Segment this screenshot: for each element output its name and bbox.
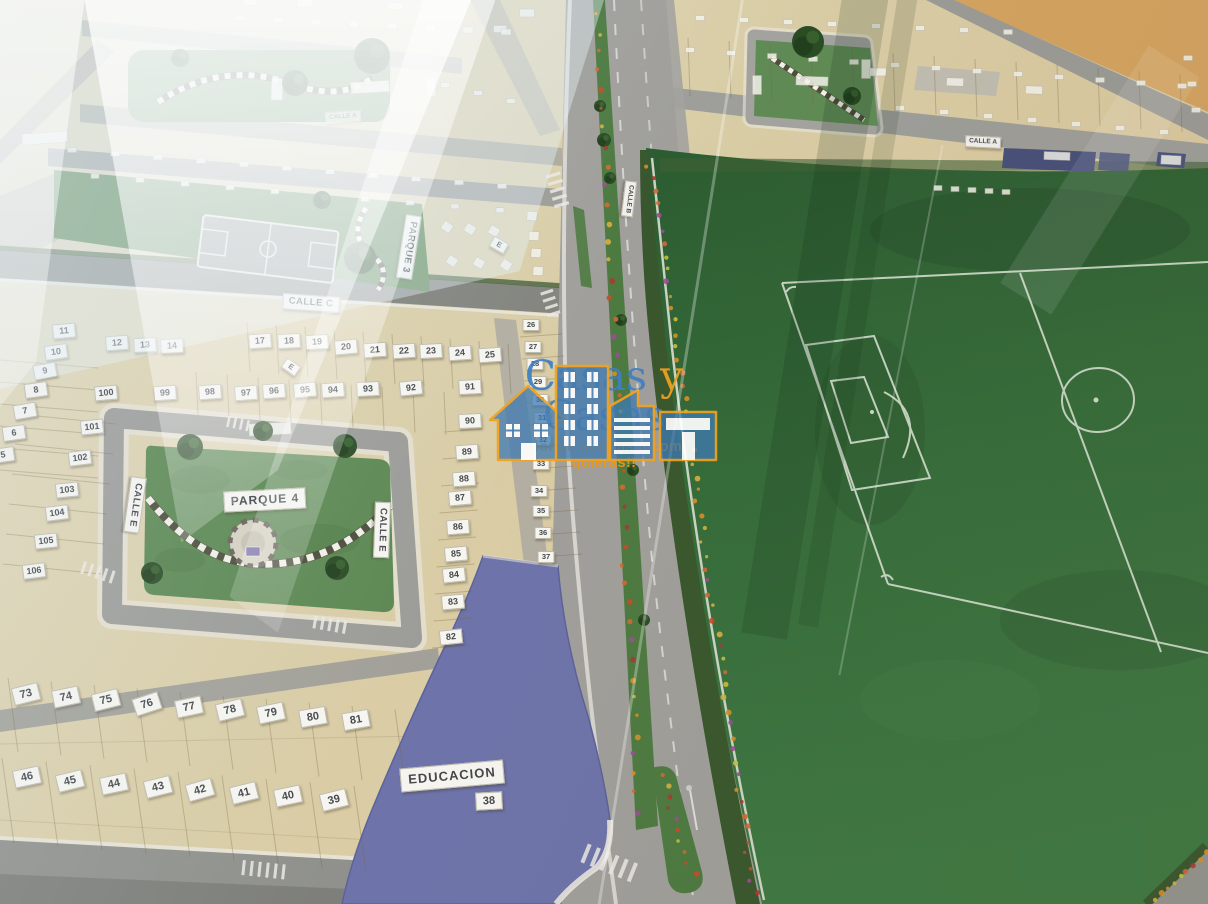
lot-plaque: 82: [439, 628, 463, 645]
street-label: CALLE B: [621, 180, 637, 217]
lot-plaque: 77: [174, 695, 204, 718]
tower-icon: [556, 366, 608, 460]
street-label: EDUCACION: [399, 760, 504, 793]
letter-plaque: E: [489, 236, 510, 255]
letter-plaque: E: [281, 357, 302, 377]
street-label: CALLE C: [282, 293, 340, 313]
lot-plaque: 89: [455, 444, 479, 461]
lot-plaque: 44: [99, 772, 129, 795]
lot-plaque: 83: [441, 594, 465, 611]
lot-plaque: 94: [321, 382, 345, 399]
lot-plaque: 41: [229, 781, 260, 805]
lot-plaque: 23: [419, 343, 443, 359]
lot-plaque: 93: [356, 381, 380, 397]
lot-plaque: 103: [55, 481, 79, 498]
lot-plaque: 9: [32, 362, 57, 381]
lot-plaque: 42: [185, 778, 216, 803]
lot-plaque: 99: [153, 385, 177, 402]
lot-plaque: 18: [277, 333, 301, 349]
lot-plaque: 8: [24, 381, 49, 399]
lot-plaque: 5: [0, 446, 15, 464]
lot-plaque: 7: [12, 402, 37, 421]
lot-plaque: 96: [262, 383, 286, 400]
lot-plaque: 90: [458, 413, 482, 429]
lot-plaque: 104: [45, 504, 70, 522]
lot-plaque: 73: [11, 682, 42, 706]
lot-plaque: 24: [448, 345, 472, 362]
lot-plaque: 39: [319, 788, 350, 812]
lot-plaque: 105: [34, 532, 58, 549]
lot-plaque: 46: [12, 765, 42, 788]
lot-plaque: 101: [80, 418, 104, 435]
lot-plaque: 91: [458, 379, 482, 395]
lot-plaque: 88: [452, 471, 476, 488]
lot-plaque: 81: [341, 709, 371, 731]
brand-watermark: Casas y Casas ...donde quieras y como qu…: [486, 358, 722, 540]
street-label: CALLE E: [123, 476, 147, 534]
lot-plaque: 14: [160, 338, 184, 354]
lot-plaque: 75: [91, 688, 122, 712]
lot-plaque: 76: [131, 691, 162, 716]
lot-plaque: 80: [298, 706, 328, 728]
lot-plaque: 78: [215, 698, 246, 722]
lot-plaque: 95: [293, 382, 317, 399]
lot-plaque: 11: [52, 323, 76, 340]
lot-plaque: 106: [22, 562, 47, 580]
lot-plaque: 74: [51, 685, 81, 708]
lot-plaque: 85: [444, 546, 468, 563]
lot-plaque: 92: [399, 379, 423, 396]
lot-plaque: 87: [448, 490, 472, 507]
lot-plaque: 100: [94, 385, 118, 402]
lot-plaque: 26: [523, 319, 540, 331]
brand-buildings-icon: [486, 358, 722, 472]
lot-plaque: 84: [442, 566, 466, 583]
lot-plaque: 6: [2, 424, 27, 442]
street-label: CALLE E: [373, 502, 391, 559]
lot-plaque: 10: [44, 343, 69, 361]
lot-plaque: 22: [392, 343, 416, 360]
lot-plaque: 37: [538, 551, 555, 563]
lot-plaque: 38: [475, 791, 503, 810]
street-label: PARQUE 4: [223, 487, 306, 512]
lot-plaque: 79: [256, 701, 286, 724]
lot-plaque: 43: [143, 775, 174, 799]
factory-icon: [610, 390, 654, 460]
street-label: CALLE A: [965, 135, 1002, 149]
lot-plaque: 19: [305, 334, 329, 350]
lot-plaque: 20: [334, 339, 358, 356]
model-photo: 1112131410987651009910110210310410510617…: [0, 0, 1208, 904]
lot-plaque: 97: [234, 385, 258, 402]
lot-plaque: 13: [133, 337, 157, 353]
lot-plaque: 98: [198, 384, 222, 401]
lot-plaque: 40: [273, 784, 303, 807]
lot-plaque: 21: [363, 342, 387, 359]
lot-plaque: 102: [68, 449, 93, 467]
street-label: PARQUE 3: [396, 214, 422, 280]
lot-plaque: 12: [105, 335, 129, 352]
lot-plaque: 45: [55, 769, 86, 793]
street-label: CALLE A: [325, 110, 362, 124]
lot-plaque: 17: [248, 333, 272, 350]
lot-plaque: 86: [446, 519, 470, 536]
